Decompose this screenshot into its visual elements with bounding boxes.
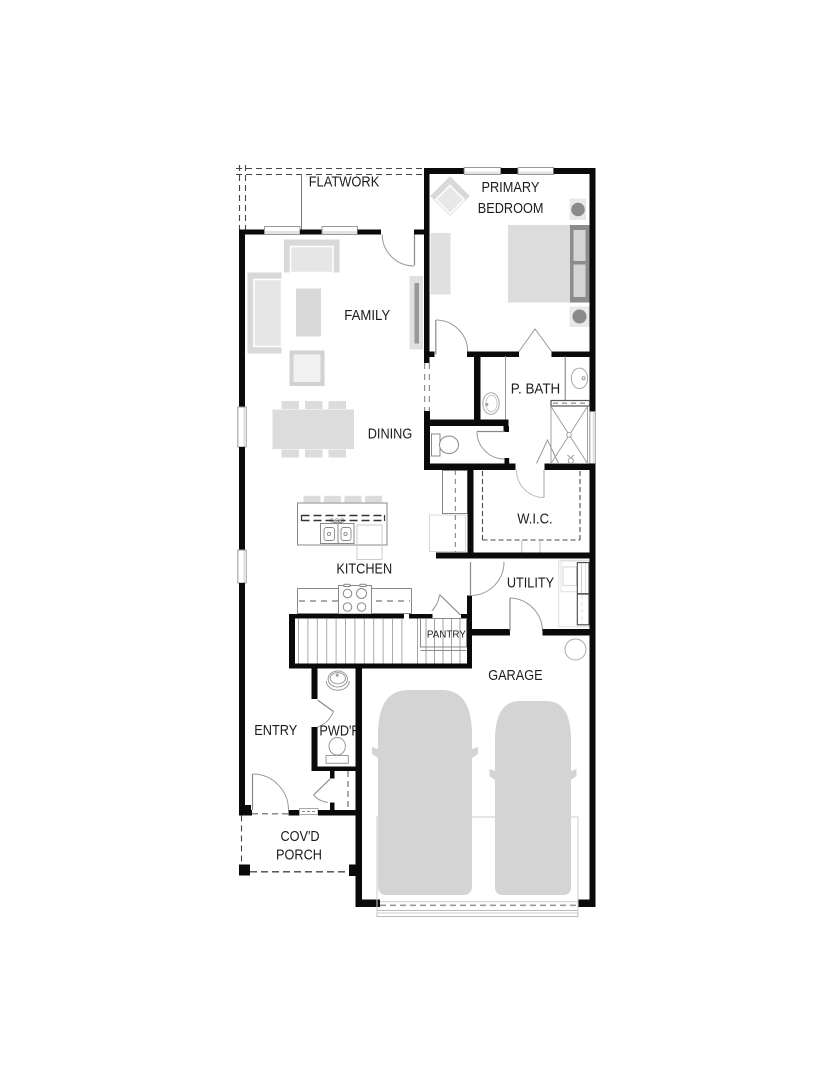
svg-text:FLATWORK: FLATWORK [309,174,380,190]
svg-text:COV'D: COV'D [280,829,319,845]
svg-text:FAMILY: FAMILY [344,308,390,324]
svg-text:PORCH: PORCH [276,848,322,864]
svg-text:KITCHEN: KITCHEN [336,562,392,578]
svg-text:PWD'R: PWD'R [319,724,360,740]
svg-text:ENTRY: ENTRY [254,723,297,739]
svg-text:C.S.D: C.S.D [330,519,345,525]
svg-text:BEDROOM: BEDROOM [478,201,544,217]
svg-text:UTILITY: UTILITY [507,575,555,591]
svg-text:PANTRY: PANTRY [427,630,466,641]
svg-text:DINING: DINING [368,426,413,442]
svg-text:P. BATH: P. BATH [511,381,560,397]
svg-text:PRIMARY: PRIMARY [481,180,539,196]
svg-text:W.I.C.: W.I.C. [517,511,552,527]
svg-text:GARAGE: GARAGE [488,668,543,684]
